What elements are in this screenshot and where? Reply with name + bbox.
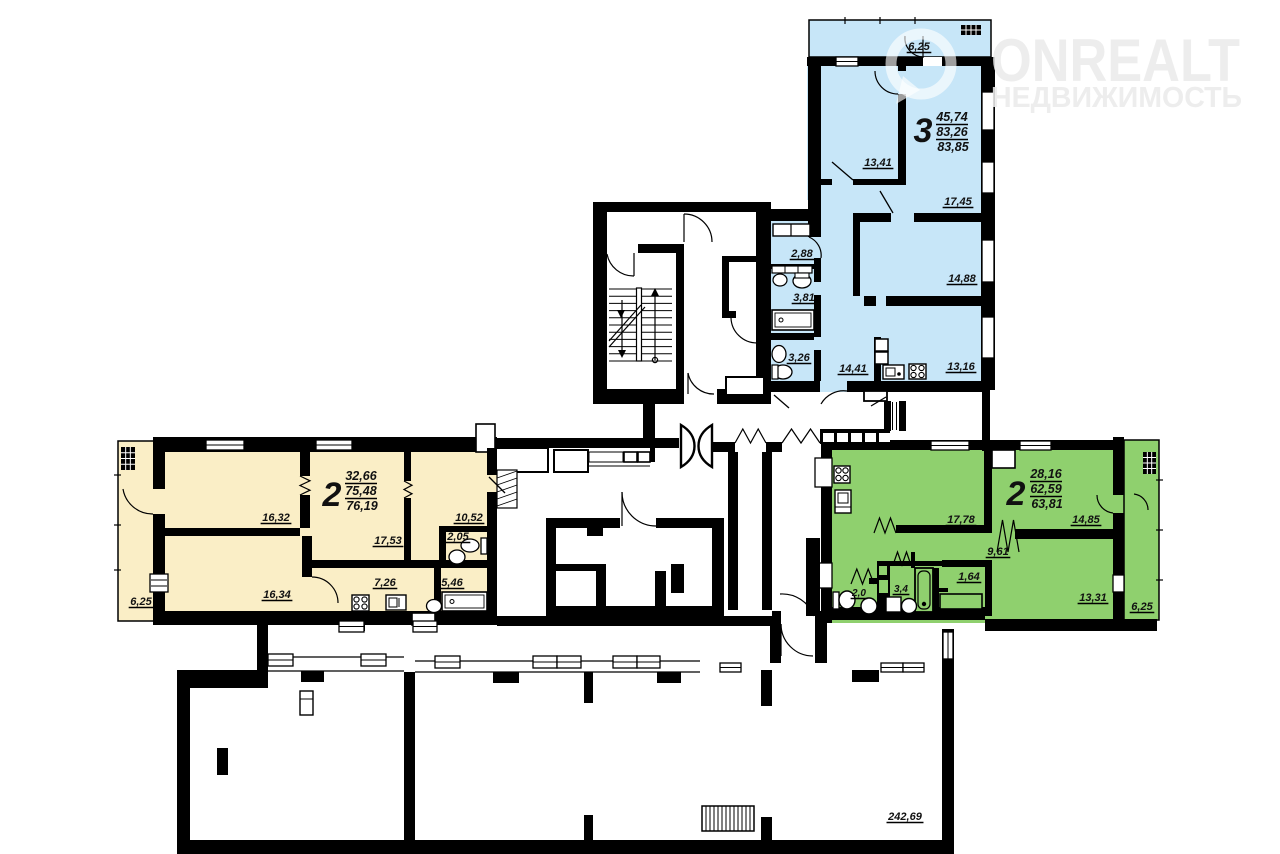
- svg-text:17,53: 17,53: [374, 535, 402, 547]
- svg-text:45,74: 45,74: [935, 110, 967, 124]
- svg-text:17,78: 17,78: [947, 514, 975, 526]
- svg-text:6,25: 6,25: [130, 596, 152, 608]
- svg-text:6,25: 6,25: [1131, 601, 1153, 613]
- svg-text:16,34: 16,34: [263, 589, 291, 601]
- svg-text:32,66: 32,66: [345, 469, 377, 483]
- svg-text:1,64: 1,64: [958, 571, 979, 583]
- svg-text:14,85: 14,85: [1072, 514, 1100, 526]
- svg-text:14,41: 14,41: [839, 363, 867, 375]
- svg-text:2,88: 2,88: [790, 248, 813, 260]
- svg-text:10,52: 10,52: [455, 512, 483, 524]
- svg-text:242,69: 242,69: [887, 811, 923, 823]
- svg-text:62,59: 62,59: [1030, 482, 1061, 496]
- svg-text:83,26: 83,26: [936, 125, 968, 139]
- svg-text:14,88: 14,88: [948, 273, 976, 285]
- svg-text:3,4: 3,4: [894, 584, 908, 595]
- svg-text:13,31: 13,31: [1079, 592, 1107, 604]
- svg-text:3,26: 3,26: [788, 352, 810, 364]
- svg-text:2: 2: [322, 476, 342, 514]
- svg-text:9,61: 9,61: [987, 546, 1008, 558]
- svg-text:13,16: 13,16: [947, 361, 975, 373]
- svg-text:17,45: 17,45: [944, 196, 972, 208]
- svg-text:3,81: 3,81: [793, 292, 814, 304]
- svg-text:7,26: 7,26: [374, 577, 396, 589]
- svg-text:3: 3: [914, 112, 933, 150]
- svg-text:13,41: 13,41: [864, 157, 892, 169]
- svg-text:16,32: 16,32: [262, 512, 290, 524]
- svg-text:75,48: 75,48: [345, 484, 376, 498]
- svg-text:НЕДВИЖИМОСТЬ: НЕДВИЖИМОСТЬ: [991, 82, 1242, 114]
- svg-text:5,46: 5,46: [441, 577, 463, 589]
- svg-text:63,81: 63,81: [1031, 497, 1062, 511]
- svg-text:2: 2: [1006, 475, 1026, 513]
- svg-text:2,0: 2,0: [851, 588, 866, 599]
- svg-text:2,05: 2,05: [446, 531, 469, 543]
- svg-text:6,25: 6,25: [908, 41, 930, 53]
- svg-text:83,85: 83,85: [937, 140, 969, 154]
- svg-text:28,16: 28,16: [1029, 467, 1062, 481]
- svg-text:76,19: 76,19: [346, 499, 377, 513]
